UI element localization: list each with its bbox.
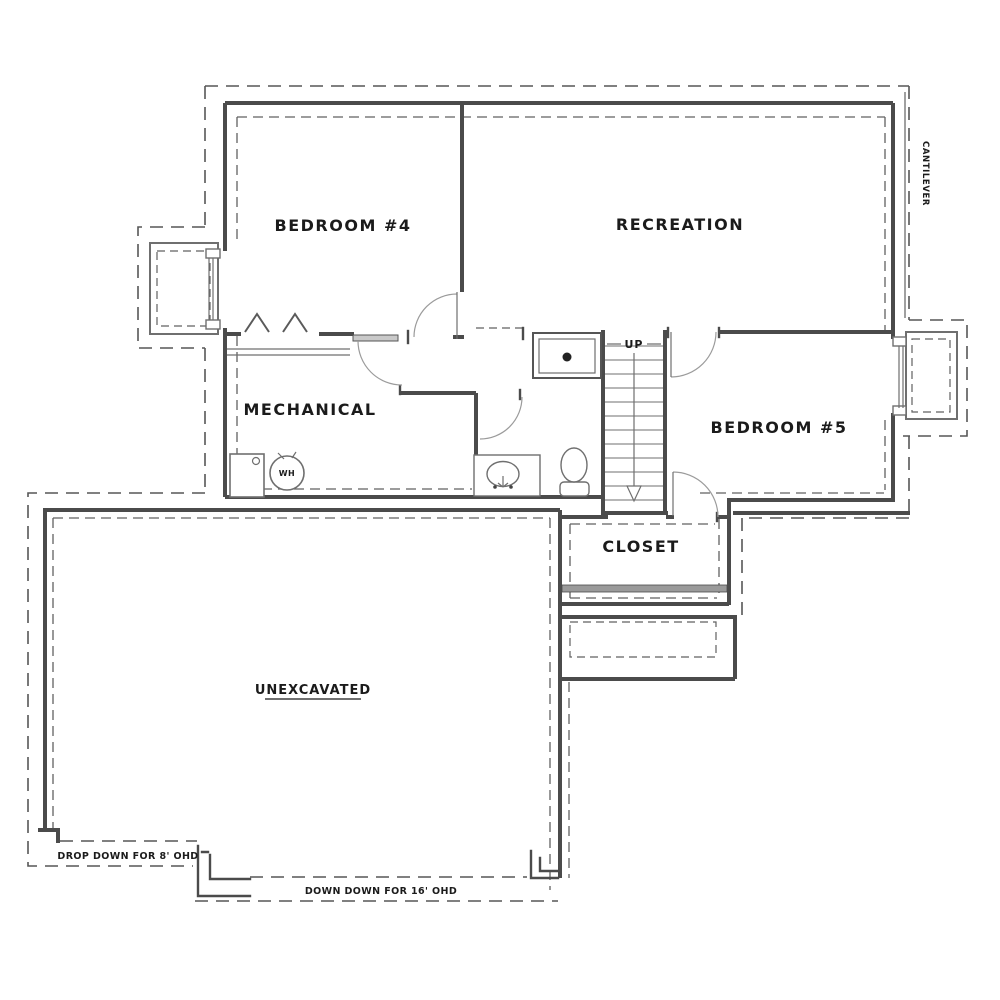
bathroom-door-swing	[480, 397, 522, 439]
mechanical-door-leaf	[353, 335, 398, 341]
sink-handle	[509, 485, 513, 489]
inner-dashed-lines	[53, 117, 885, 890]
mechanical-label: MECHANICAL	[243, 400, 376, 419]
bathroom-fixtures	[474, 333, 601, 496]
window-glass	[209, 258, 213, 320]
shower-drain	[563, 353, 572, 362]
sink-handle	[493, 485, 497, 489]
water-heater-label: WH	[279, 469, 296, 478]
stair-direction-arrowhead	[627, 486, 641, 501]
down-down-16-label: DOWN DOWN FOR 16' OHD	[305, 886, 457, 897]
toilet-tank	[560, 482, 589, 496]
window-well-right	[893, 332, 957, 419]
stairs-up-label: UP	[625, 338, 644, 351]
drop-down-8-label: DROP DOWN FOR 8' OHD	[57, 851, 198, 862]
closet-door-swing	[673, 472, 718, 517]
wall-bottom-left-step	[40, 830, 58, 841]
step-8ft-to-16ft	[198, 846, 250, 896]
stoop-dashed-rect	[570, 622, 716, 657]
annotation-labels: UP WH CANTILEVER DROP DOWN FOR 8' OHD DO…	[57, 141, 930, 897]
walls	[40, 103, 908, 896]
cantilever-label: CANTILEVER	[920, 141, 930, 206]
foundation-left-well-bump	[138, 227, 205, 348]
unexcavated-label: UNEXCAVATED	[255, 683, 371, 698]
floor-plan-page: BEDROOM #4 RECREATION MECHANICAL BEDROOM…	[0, 0, 1000, 1000]
bedroom4-label: BEDROOM #4	[275, 216, 412, 235]
window-jamb	[206, 249, 220, 258]
room-labels: BEDROOM #4 RECREATION MECHANICAL BEDROOM…	[243, 215, 847, 699]
basement-floor-plan-drawing: BEDROOM #4 RECREATION MECHANICAL BEDROOM…	[0, 0, 1000, 1000]
window-well-box	[906, 332, 957, 419]
window-glass	[899, 346, 903, 408]
closet-label: CLOSET	[602, 537, 679, 556]
inner-dash-unexcavated	[53, 518, 550, 890]
mechanical-door-swing	[358, 341, 402, 385]
staircase	[605, 344, 663, 501]
wall-stoop	[560, 617, 735, 679]
window-well-grate	[157, 251, 210, 326]
step-16ft-right	[531, 851, 558, 878]
recreation-label: RECREATION	[616, 215, 744, 234]
window-well-left	[150, 243, 220, 334]
window-jamb	[206, 320, 220, 329]
mechanical-beam	[227, 349, 350, 355]
bedroom5-label: BEDROOM #5	[711, 418, 848, 437]
closet-header-beam	[562, 585, 727, 592]
bifold-door-chevrons	[245, 314, 307, 332]
bedroom5-door-swing	[671, 332, 716, 377]
window-jamb	[893, 337, 906, 346]
foundation-unexcavated-outer	[28, 493, 205, 866]
bedroom4-door-swing	[414, 294, 457, 337]
window-well-grate	[912, 339, 950, 412]
toilet-bowl	[561, 448, 587, 482]
